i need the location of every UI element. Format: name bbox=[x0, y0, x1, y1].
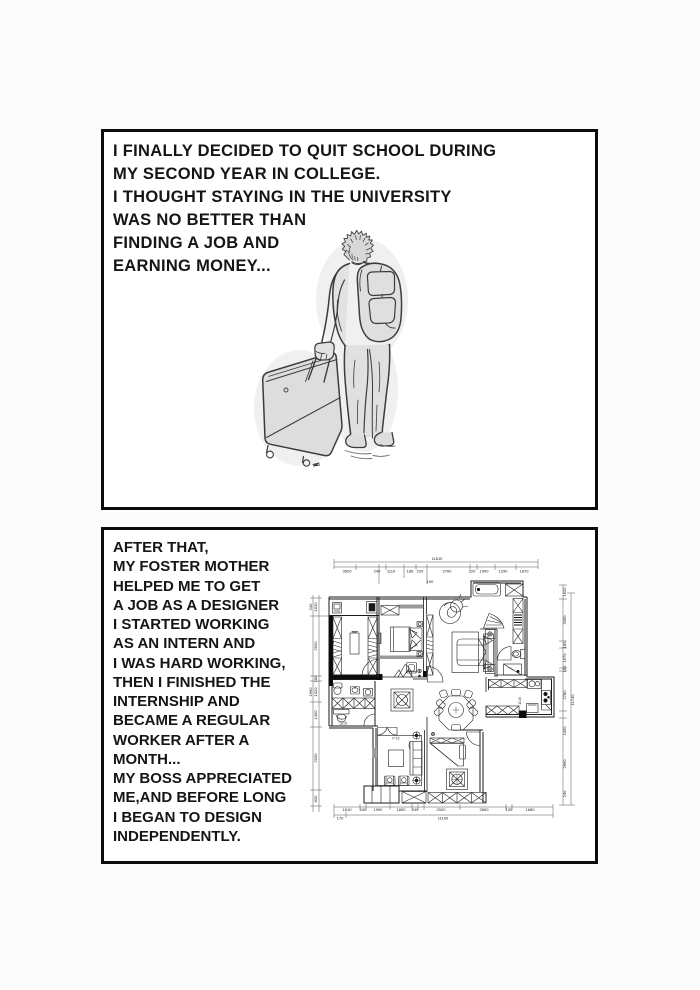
svg-text:240: 240 bbox=[374, 569, 381, 574]
svg-text:2760: 2760 bbox=[443, 569, 453, 574]
svg-text:1140: 1140 bbox=[518, 697, 522, 705]
svg-text:11100: 11100 bbox=[438, 816, 449, 821]
svg-text:11740: 11740 bbox=[570, 694, 575, 706]
svg-text:186: 186 bbox=[407, 569, 414, 574]
svg-text:240: 240 bbox=[308, 603, 313, 610]
svg-text:1800: 1800 bbox=[397, 807, 407, 812]
svg-text:1900: 1900 bbox=[480, 569, 490, 574]
svg-text:100: 100 bbox=[427, 579, 434, 584]
svg-text:1020: 1020 bbox=[313, 687, 318, 697]
svg-text:240: 240 bbox=[562, 790, 567, 797]
svg-text:11810: 11810 bbox=[432, 556, 444, 561]
svg-text:1815: 1815 bbox=[339, 722, 347, 726]
svg-text:1620: 1620 bbox=[562, 587, 567, 597]
svg-text:1050: 1050 bbox=[562, 726, 567, 736]
svg-text:1610: 1610 bbox=[343, 807, 353, 812]
svg-text:240: 240 bbox=[360, 807, 367, 812]
svg-text:2800: 2800 bbox=[480, 807, 490, 812]
svg-text:2920: 2920 bbox=[437, 807, 447, 812]
svg-text:1810: 1810 bbox=[313, 602, 318, 612]
svg-text:1990: 1990 bbox=[374, 807, 384, 812]
svg-text:240: 240 bbox=[412, 807, 419, 812]
svg-text:130: 130 bbox=[506, 807, 513, 812]
svg-text:1570: 1570 bbox=[562, 653, 567, 663]
svg-text:1870: 1870 bbox=[520, 569, 530, 574]
svg-text:1690: 1690 bbox=[308, 687, 313, 697]
svg-text:220: 220 bbox=[469, 569, 476, 574]
svg-text:P-15: P-15 bbox=[392, 737, 399, 741]
svg-text:180: 180 bbox=[562, 641, 567, 648]
svg-text:150: 150 bbox=[562, 665, 567, 672]
svg-text:1110: 1110 bbox=[387, 569, 396, 574]
svg-text:1290: 1290 bbox=[499, 569, 509, 574]
svg-text:2690: 2690 bbox=[562, 759, 567, 769]
svg-text:3620: 3620 bbox=[343, 569, 353, 574]
svg-text:180: 180 bbox=[313, 675, 318, 682]
svg-text:220: 220 bbox=[417, 569, 424, 574]
svg-text:170: 170 bbox=[337, 816, 344, 821]
svg-text:2780: 2780 bbox=[562, 690, 567, 700]
svg-text:1400: 1400 bbox=[313, 710, 318, 720]
svg-text:2900: 2900 bbox=[313, 641, 318, 651]
svg-text:2030: 2030 bbox=[313, 753, 318, 763]
svg-text:830: 830 bbox=[313, 795, 318, 802]
svg-text:3350: 3350 bbox=[562, 615, 567, 625]
svg-text:1680: 1680 bbox=[526, 807, 536, 812]
